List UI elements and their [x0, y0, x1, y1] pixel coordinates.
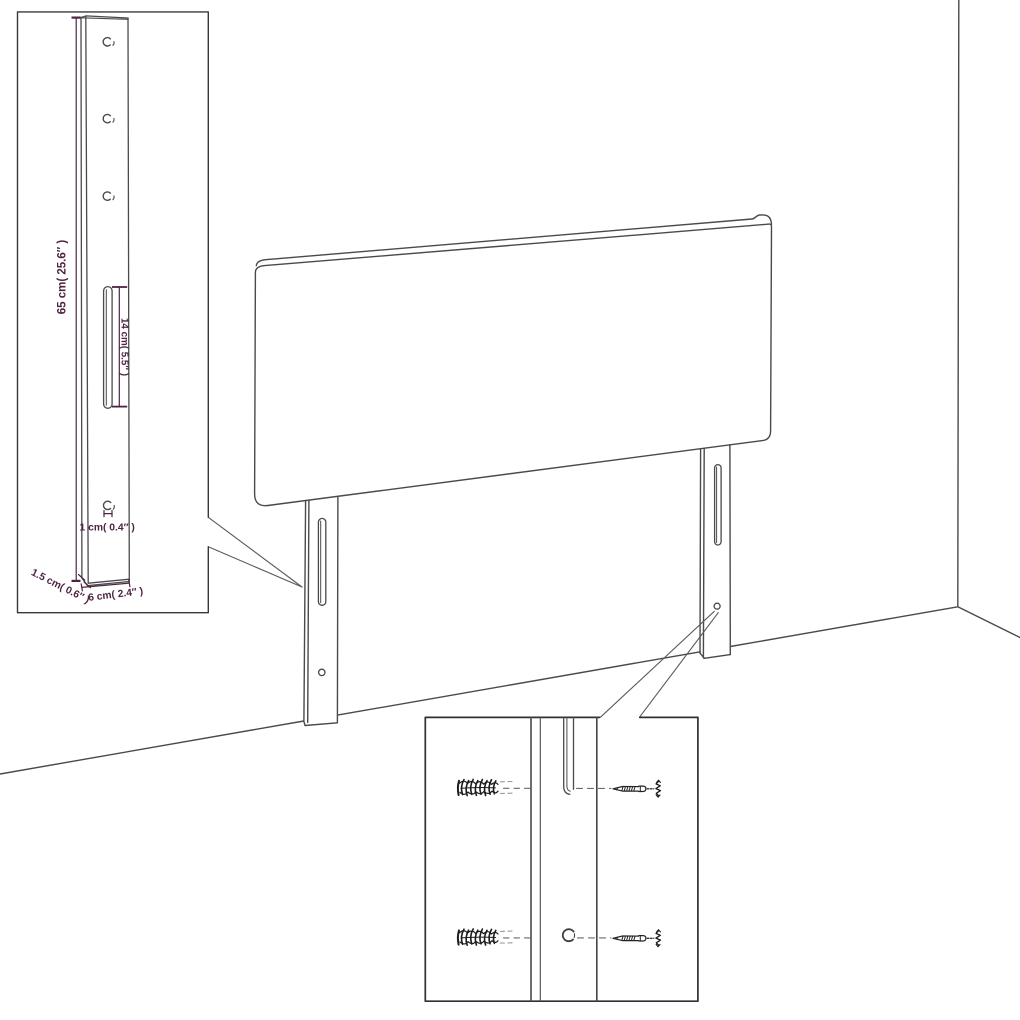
svg-text:65 cm( 25.6″ ): 65 cm( 25.6″ )	[57, 240, 69, 315]
svg-text:14 cm( 5.5″ ): 14 cm( 5.5″ )	[118, 318, 129, 376]
svg-text:6 cm( 2.4″ ): 6 cm( 2.4″ )	[88, 586, 144, 604]
svg-text:1 cm( 0.4″ ): 1 cm( 0.4″ )	[80, 523, 135, 534]
